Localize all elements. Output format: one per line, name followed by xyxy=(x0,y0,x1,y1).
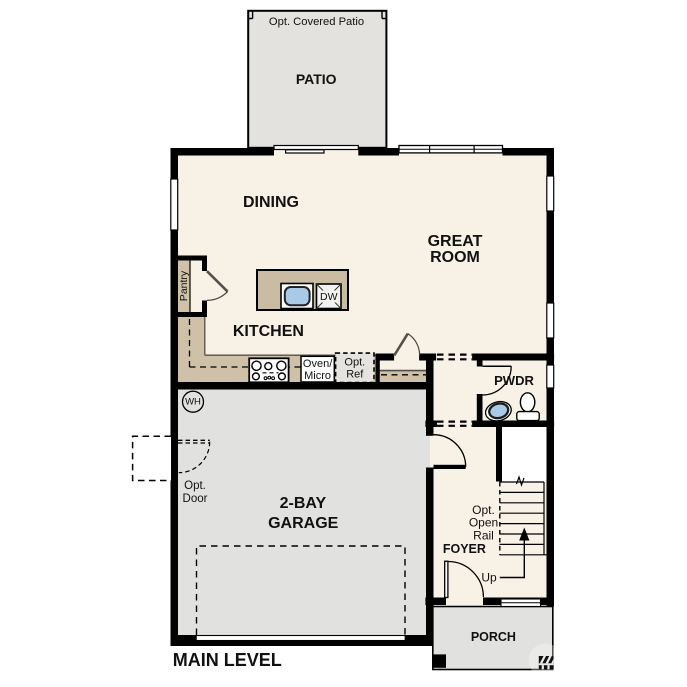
svg-text:Opt. Covered Patio: Opt. Covered Patio xyxy=(269,16,364,28)
svg-text:Oven/: Oven/ xyxy=(303,358,333,370)
svg-text:PWDR: PWDR xyxy=(494,373,534,388)
svg-text:MAIN LEVEL: MAIN LEVEL xyxy=(173,650,282,670)
svg-text:Rail: Rail xyxy=(473,529,494,543)
svg-text:DW: DW xyxy=(320,291,338,303)
svg-text:Pantry: Pantry xyxy=(178,270,190,301)
svg-text:PORCH: PORCH xyxy=(471,630,516,644)
svg-text:Door: Door xyxy=(183,493,208,505)
svg-text:Open: Open xyxy=(469,516,498,530)
svg-text:KITCHEN: KITCHEN xyxy=(233,323,304,340)
svg-text:DINING: DINING xyxy=(243,194,299,211)
svg-text:Micro: Micro xyxy=(304,370,331,382)
svg-text:Opt.: Opt. xyxy=(344,357,365,369)
svg-text:GREAT: GREAT xyxy=(428,233,483,250)
svg-text:PATIO: PATIO xyxy=(296,71,337,87)
svg-text:ROOM: ROOM xyxy=(430,249,480,266)
svg-text:Opt.: Opt. xyxy=(184,480,206,492)
svg-text:Ref: Ref xyxy=(346,369,364,381)
svg-text:2-BAY: 2-BAY xyxy=(280,495,327,512)
svg-text:Up: Up xyxy=(481,571,497,585)
svg-text:FOYER: FOYER xyxy=(443,542,486,556)
svg-text:WH: WH xyxy=(185,397,201,408)
svg-text:GARAGE: GARAGE xyxy=(268,515,339,532)
